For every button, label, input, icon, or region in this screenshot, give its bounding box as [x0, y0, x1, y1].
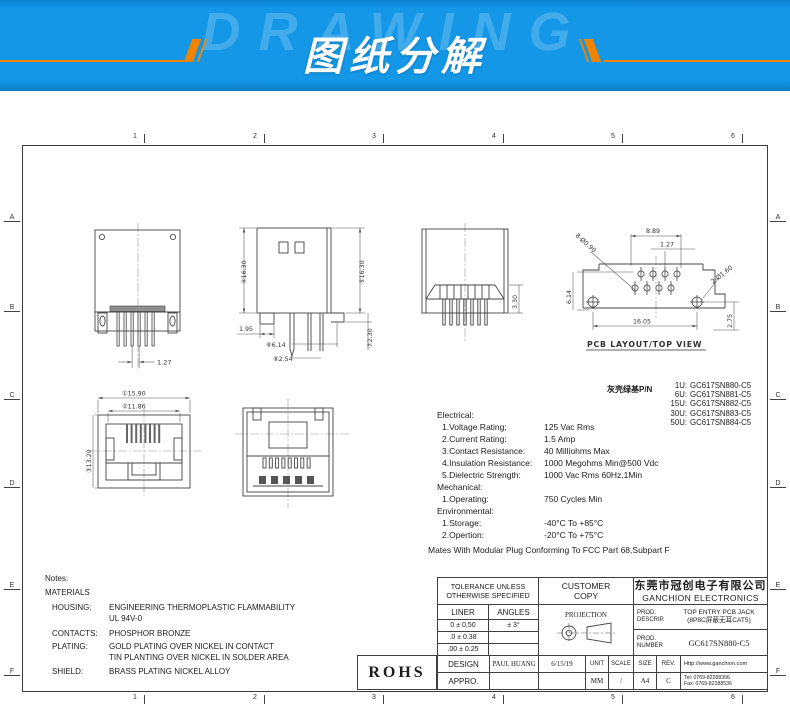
dim-holes8: 8-Ø0.90	[574, 232, 598, 255]
mechanical-title: Mechanical:	[425, 482, 783, 492]
spec-row: 2.Current Rating:1.5 Amp	[425, 434, 771, 444]
contact-bar	[110, 306, 165, 312]
electrical-title: Electrical:	[425, 410, 783, 420]
rear-body	[95, 230, 180, 333]
grid-col-label: 2	[248, 133, 262, 140]
appro-name-empty	[489, 672, 539, 690]
grid-col-label: 2	[248, 694, 262, 701]
pn-item: 15U:GC617SN882-C5	[663, 399, 751, 408]
company-name: 东莞市冠创电子有限公司 GANCHION ELECTRONICS	[633, 577, 768, 605]
environmental-title: Environmental:	[425, 506, 783, 516]
website: Http://www.ganchion.com	[680, 655, 768, 673]
grid-col-label: 6	[726, 133, 740, 140]
grid-col-label: 3	[367, 694, 381, 701]
pn-label: 灰壳绿基P/N	[607, 384, 652, 395]
scale-label: SCALE	[608, 655, 634, 673]
pcb-caption: PCB LAYOUT/TOP VIEW	[587, 340, 702, 349]
feet	[259, 476, 314, 484]
tolerance-header: TOLERANCE UNLESS OTHERWISE SPECIFIED	[437, 577, 539, 605]
liner-header: LINER	[437, 604, 489, 620]
spec-row: 4.Insulation Resistance:1000 Megohms Min…	[425, 458, 771, 468]
materials-title: MATERIALS	[45, 588, 90, 597]
angles-header: ANGLES	[488, 604, 539, 620]
board-outline	[583, 264, 725, 308]
view-pcb-layout: 8-Ø0.90 8.89 1.27 6.14 2-Ø1.60 16.05 2.7…	[563, 216, 780, 366]
prod-descrip-cell: PROD.DESCRIP. TOP ENTRY PCB JACK(8P8C屏蔽无…	[633, 604, 768, 630]
pins	[117, 312, 154, 346]
third-angle-projection-icon	[555, 619, 617, 647]
part-number: GC617SN880-C5	[671, 638, 767, 648]
designer-name: PAUL HUANG	[489, 655, 539, 673]
design-date: 6/15/19	[538, 655, 586, 673]
dim-330: 3.30	[512, 295, 519, 309]
spec-row: 5.Dielectric Strength:1000 Vac Rms 60Hz,…	[425, 470, 771, 480]
view-rear-bottom	[233, 396, 353, 512]
grid-col-label: 3	[367, 133, 381, 140]
spec-row: 1.Operating:750 Cycles Min	[425, 494, 771, 504]
dim-height-left: ④16.30	[241, 260, 248, 284]
size-value: A4	[633, 672, 657, 690]
notes-title: Notes:	[45, 574, 68, 583]
dim-holes2: 2-Ø1.60	[709, 264, 734, 286]
dim-275: 2.75	[727, 314, 734, 328]
view-front: 3.30	[413, 220, 563, 348]
grid-row-label: B	[4, 304, 20, 312]
dim-614: ⑥6.14	[266, 342, 286, 349]
projection-cell: PROJECTION	[538, 604, 634, 656]
spec-row: 1.Voltage Rating:125 Vac Rms	[425, 422, 771, 432]
appro-label: APPRO.	[437, 672, 490, 690]
side-body	[257, 228, 344, 356]
spec-row: 1.Storage:-40°C To +85°C	[425, 518, 771, 528]
dim-lines	[118, 346, 154, 368]
note-row: PLATING: GOLD PLATING OVER NICKEL IN CON…	[52, 642, 289, 663]
dim-base: 1.95	[239, 326, 253, 333]
prod-number-cell: PROD.NUMBER GC617SN880-C5	[633, 629, 768, 657]
view-face: ①15.90 ②11.86 ③13.20	[86, 383, 208, 518]
grid-col-label: 5	[606, 694, 620, 701]
dim-arrows	[593, 235, 697, 328]
dim-arrows	[243, 228, 362, 335]
grid-row-label: A	[4, 214, 20, 222]
dim-1605: 16.05	[633, 319, 651, 326]
grid-row-label: C	[4, 392, 20, 400]
size-label: SIZE	[633, 655, 657, 673]
unit-value: MM	[585, 672, 609, 690]
grid-col-label: 1	[128, 694, 142, 701]
tel-fax: Tel: 0769-82288306 Fax: 0769-82288536	[680, 672, 768, 690]
dim-1320: ③13.20	[86, 449, 93, 473]
dim-1590: ①15.90	[122, 391, 146, 398]
grid-col-label: 1	[128, 133, 142, 140]
note-row: SHIELD: BRASS PLATING NICKEL ALLOY	[52, 667, 230, 678]
grid-col-label: 6	[726, 694, 740, 701]
grid-row-label: C	[770, 392, 786, 400]
banner-line-right	[604, 60, 790, 62]
page-banner: DRAWING 图纸分解	[0, 0, 790, 91]
dim-230: ⑦2.30	[367, 328, 374, 348]
holes	[586, 267, 704, 309]
spec-row: 3.Contact Resistance:40 Milliohms Max	[425, 446, 771, 456]
dim-254: ⑧2.54	[273, 356, 293, 363]
customer-copy: CUSTOMER COPY	[538, 577, 634, 605]
dim-127: 1.27	[660, 242, 674, 249]
grid-row-label: D	[4, 480, 20, 488]
view-side: ④16.30 ⑤16.30 1.95 ⑥6.14 ⑧2.54 ⑦2.30	[233, 220, 405, 390]
appro-date-empty	[538, 672, 586, 690]
rev-value: C	[656, 672, 681, 690]
dim-614: 6.14	[566, 290, 573, 304]
dim-arrows	[128, 361, 144, 364]
note-row: CONTACTS: PHOSPHOR BRONZE	[52, 629, 190, 640]
screenshot-root: DRAWING 图纸分解 1 2 3 4 5 6 1 2 3 4 5 6 A B…	[0, 0, 790, 712]
grid-row-label: F	[770, 668, 786, 676]
page-title: 图纸分解	[0, 24, 790, 82]
grid-col-label: 5	[606, 133, 620, 140]
pn-list: 1U:GC617SN880-C5 6U:GC617SN881-C5 15U:GC…	[663, 381, 751, 427]
note-row: HOUSING: ENGINEERING THERMOPLASTIC FLAMM…	[52, 603, 295, 624]
contacts	[126, 424, 160, 443]
pn-item: 1U:GC617SN880-C5	[663, 381, 751, 390]
dim-pitch: 1.27	[157, 359, 171, 367]
rohs-badge: ROHS	[357, 655, 437, 690]
rev-label: REV.	[656, 655, 681, 673]
grid-row-label: F	[4, 668, 20, 676]
view-rear: 1.27	[85, 220, 237, 378]
banner-line-left	[0, 60, 186, 62]
unit-label: UNIT	[585, 655, 609, 673]
pn-item: 6U:GC617SN881-C5	[663, 390, 751, 399]
grid-col-label: 4	[487, 133, 501, 140]
dim-1186: ②11.86	[122, 404, 146, 411]
scale-value: /	[608, 672, 634, 690]
dim-height-right: ⑤16.30	[359, 260, 366, 284]
mates-note: Mates With Modular Plug Conforming To FC…	[428, 545, 670, 555]
dim-889: 8.89	[646, 228, 660, 235]
grid-row-label: E	[770, 582, 786, 590]
grid-col-label: 4	[487, 694, 501, 701]
grid-row-label: E	[4, 582, 20, 590]
design-label: DESIGN	[437, 655, 490, 673]
spec-row: 2.Opertion:-20°C To +75°C	[425, 530, 771, 540]
